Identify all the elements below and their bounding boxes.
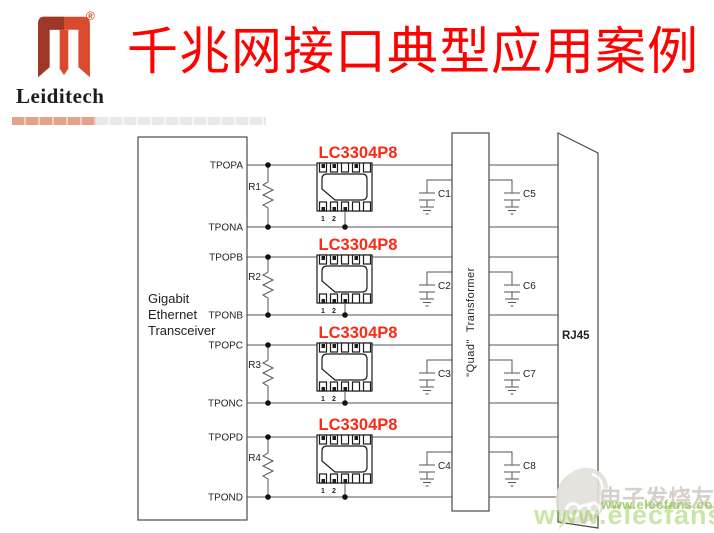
ic-package-a: 1 2 <box>317 163 372 227</box>
resistor-r4-label: R4 <box>248 453 261 464</box>
pin-label-tponc: TPONC <box>208 399 243 410</box>
pin-label-tponb: TPONB <box>209 311 244 322</box>
ic-label-b: LC3304P8 <box>319 236 398 254</box>
cap-c6: C6 <box>489 272 536 306</box>
resistor-r4 <box>263 437 273 497</box>
pin-number-1: 1 <box>321 216 325 223</box>
pin-number-2: 2 <box>332 488 336 495</box>
cap-c3-label: C3 <box>438 369 451 380</box>
pin-label-tpopb: TPOPB <box>209 253 243 264</box>
pin-label-tpopa: TPOPA <box>210 161 243 172</box>
ic-package-c: 1 2 <box>317 343 372 403</box>
cap-c1-label: C1 <box>438 189 451 200</box>
pin-label-tpopd: TPOPD <box>209 433 243 444</box>
resistor-r2 <box>263 257 273 315</box>
slide: ® Leiditech 千兆网接口典型应用案例 <box>0 0 714 533</box>
transformer-label: "Quad" Transformer <box>465 267 477 377</box>
cap-c8: C8 <box>489 452 536 486</box>
ic-package-d: 1 2 <box>317 435 372 497</box>
cap-c4: C4 <box>419 452 452 486</box>
transceiver-label-1: Gigabit <box>148 291 190 306</box>
pin-label-tpond: TPOND <box>208 493 243 504</box>
pin-number-1: 1 <box>321 396 325 403</box>
pin-number-1: 1 <box>321 488 325 495</box>
ic-label-d: LC3304P8 <box>319 416 398 434</box>
pin-number-2: 2 <box>332 396 336 403</box>
ic-label-a: LC3304P8 <box>319 144 398 162</box>
cap-c5-label: C5 <box>523 189 536 200</box>
pin-label-tpopc: TPOPC <box>209 341 243 352</box>
ic-label-c: LC3304P8 <box>319 324 398 342</box>
pin-number-2: 2 <box>332 308 336 315</box>
transceiver-label-3: Transceiver <box>148 323 216 338</box>
cap-c7-label: C7 <box>523 369 536 380</box>
cap-c8-label: C8 <box>523 461 536 472</box>
cap-c7: C7 <box>489 360 536 394</box>
channel-c: R3 LC3304P8 1 2 C3 <box>248 324 536 403</box>
cap-c3: C3 <box>419 360 452 394</box>
cap-c6-label: C6 <box>523 281 536 292</box>
cap-c1: C1 <box>419 180 452 214</box>
transceiver-label-2: Ethernet <box>148 307 198 322</box>
circuit-schematic: Gigabit Ethernet Transceiver TPOPA TPONA… <box>0 0 714 533</box>
resistor-r1-label: R1 <box>248 182 261 193</box>
channel-b: R2 LC3304P8 1 2 C2 <box>248 236 536 315</box>
resistor-r1 <box>263 165 273 227</box>
channel-a: R1 LC3304P8 1 2 C1 <box>248 144 536 227</box>
pin-number-1: 1 <box>321 308 325 315</box>
cap-c2: C2 <box>419 272 452 306</box>
resistor-r2-label: R2 <box>248 272 261 283</box>
channel-d: R4 LC3304P8 1 2 C4 <box>248 416 536 497</box>
rj45-label: RJ45 <box>562 330 590 342</box>
cap-c2-label: C2 <box>438 281 451 292</box>
pin-label-tpona: TPONA <box>209 223 244 234</box>
watermark-url-large: www.elecfans.com <box>534 500 714 531</box>
resistor-r3-label: R3 <box>248 360 261 371</box>
cap-c4-label: C4 <box>438 461 451 472</box>
wires-right <box>489 165 558 497</box>
resistor-r3 <box>263 345 273 403</box>
ic-package-b: 1 2 <box>317 255 372 315</box>
pin-number-2: 2 <box>332 216 336 223</box>
cap-c5: C5 <box>489 180 536 214</box>
